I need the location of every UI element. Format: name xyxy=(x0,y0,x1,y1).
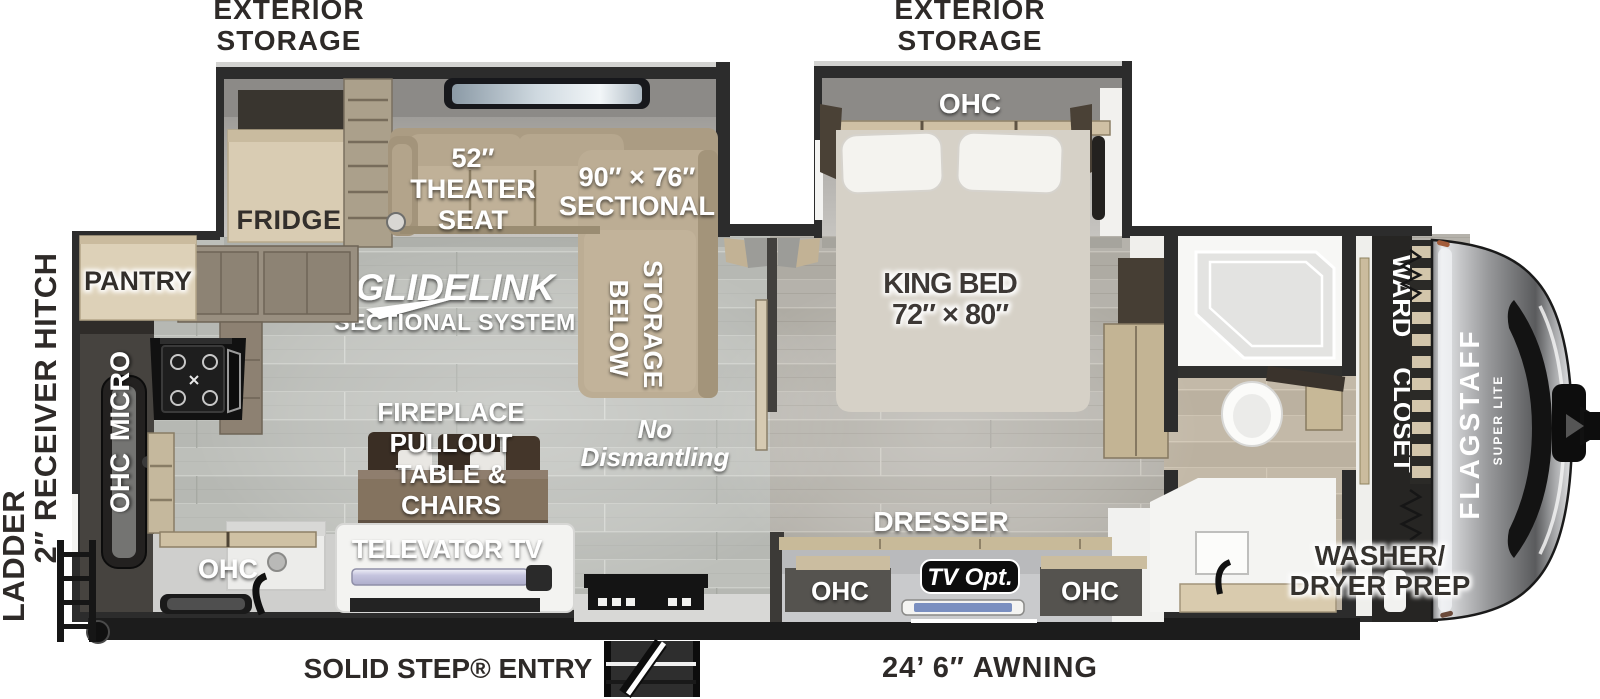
svg-text:CHAIRS: CHAIRS xyxy=(401,490,501,520)
svg-text:PULLOUT: PULLOUT xyxy=(390,428,513,458)
svg-text:DRESSER: DRESSER xyxy=(873,506,1008,537)
svg-text:WASHER/: WASHER/ xyxy=(1315,540,1446,571)
svg-text:OHC: OHC xyxy=(811,576,869,606)
svg-text:SEAT: SEAT xyxy=(438,205,509,235)
svg-text:EXTERIOR: EXTERIOR xyxy=(894,0,1045,25)
svg-text:FRIDGE: FRIDGE xyxy=(236,205,341,235)
svg-text:EXTERIOR: EXTERIOR xyxy=(213,0,364,25)
svg-text:GLIDELINK: GLIDELINK xyxy=(355,267,557,308)
svg-text:THEATER: THEATER xyxy=(410,174,536,204)
svg-text:TV Opt.: TV Opt. xyxy=(927,564,1012,591)
svg-text:90″ × 76″: 90″ × 76″ xyxy=(579,162,696,192)
svg-text:2″ RECEIVER HITCH: 2″ RECEIVER HITCH xyxy=(28,252,63,563)
svg-text:OHC: OHC xyxy=(198,554,258,584)
svg-text:SECTIONAL: SECTIONAL xyxy=(559,191,715,221)
svg-text:STORAGE: STORAGE xyxy=(638,260,668,388)
svg-text:Dismantling: Dismantling xyxy=(581,442,730,472)
svg-text:FIREPLACE: FIREPLACE xyxy=(377,397,524,427)
svg-text:MICRO: MICRO xyxy=(105,351,135,441)
svg-text:No: No xyxy=(638,414,673,444)
svg-text:OHC: OHC xyxy=(105,453,135,513)
svg-text:SUPER LITE: SUPER LITE xyxy=(1491,375,1505,466)
svg-text:24’ 6″ AWNING: 24’ 6″ AWNING xyxy=(882,652,1098,684)
svg-text:SOLID STEP® ENTRY: SOLID STEP® ENTRY xyxy=(304,653,593,684)
svg-text:LADDER: LADDER xyxy=(0,490,31,622)
svg-text:OHC: OHC xyxy=(1061,576,1119,606)
svg-text:FLAGSTAFF: FLAGSTAFF xyxy=(1454,328,1485,519)
svg-text:52″: 52″ xyxy=(452,143,495,173)
svg-text:STORAGE: STORAGE xyxy=(898,25,1043,56)
svg-text:OHC: OHC xyxy=(939,88,1001,119)
svg-text:STORAGE: STORAGE xyxy=(217,25,362,56)
svg-text:72″ × 80″: 72″ × 80″ xyxy=(892,299,1009,331)
svg-text:BELOW: BELOW xyxy=(604,280,634,377)
svg-text:TABLE &: TABLE & xyxy=(396,459,507,489)
svg-text:PANTRY: PANTRY xyxy=(84,266,192,296)
svg-text:SECTIONAL SYSTEM: SECTIONAL SYSTEM xyxy=(334,309,575,335)
svg-text:TELEVATOR TV: TELEVATOR TV xyxy=(352,534,543,564)
svg-text:KING BED: KING BED xyxy=(883,268,1017,300)
svg-text:DRYER PREP: DRYER PREP xyxy=(1289,570,1470,601)
